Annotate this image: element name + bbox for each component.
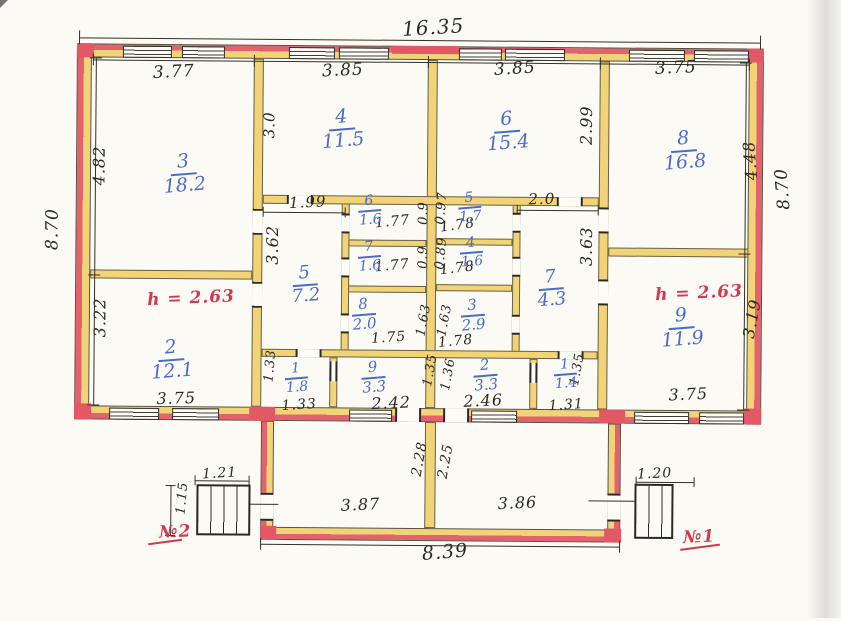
room-area: 3.3	[474, 376, 499, 395]
room-label-5: 51.7	[457, 190, 482, 225]
wall-corner	[392, 46, 459, 55]
dimension-line	[79, 30, 80, 44]
dimension-label: 4.48	[739, 140, 761, 181]
window-symbol	[109, 408, 159, 420]
dimension-label: 0.9	[416, 245, 431, 269]
dimension-line	[619, 541, 620, 553]
dimension-label: 2.42	[371, 392, 411, 413]
dimension-line	[588, 500, 635, 501]
room-label-9: 93.3	[360, 359, 387, 396]
wall	[348, 285, 426, 293]
room-area: 18.2	[163, 173, 207, 197]
room-area: 3.3	[362, 378, 387, 397]
dimension-line	[195, 475, 196, 485]
room-number: 6	[357, 193, 381, 212]
dimension-label: 0.9	[416, 201, 431, 225]
room-area: 1.8	[285, 378, 309, 395]
dimension-label: 1.99	[289, 192, 327, 212]
dimension-label: 1.33	[261, 349, 279, 383]
window-symbol	[634, 412, 689, 424]
wall	[746, 49, 764, 425]
room-label-6: 615.4	[484, 108, 530, 155]
walls-layer	[2, 0, 841, 3]
room-area: 12.1	[151, 359, 195, 383]
room-label-8: 82.0	[351, 296, 378, 333]
dimension-label: 3.77	[152, 61, 195, 83]
dimension-line	[88, 274, 100, 275]
dimension-label: 1.63	[434, 303, 455, 338]
dimension-label: 1.31	[548, 396, 584, 414]
room-label-3: 32.9	[460, 297, 487, 334]
dimension-line	[248, 504, 278, 505]
room-label-2: 212.1	[149, 337, 195, 384]
wall	[607, 423, 621, 541]
dimension-line	[760, 36, 761, 50]
entrance-number-label: №1	[683, 526, 716, 547]
dimension-line	[87, 404, 99, 405]
window-symbol	[182, 46, 225, 58]
wall	[608, 247, 748, 257]
wall-corner	[74, 403, 91, 419]
room-label-7: 71.6	[357, 239, 382, 274]
wall	[74, 43, 92, 419]
dimension-label: 1.36	[438, 357, 459, 392]
door-opening	[296, 349, 322, 357]
dimension-line	[90, 57, 102, 58]
dimension-label: 3.22	[90, 298, 109, 338]
wall-corner	[599, 409, 625, 423]
dimension-line	[166, 485, 176, 486]
dimension-line	[600, 57, 601, 69]
dimension-line	[598, 205, 599, 215]
dimension-label: 2.99	[577, 105, 596, 145]
room-number: 1	[284, 360, 308, 379]
door-opening	[260, 493, 273, 521]
door-opening	[598, 279, 608, 305]
door-opening	[529, 363, 537, 383]
wall	[597, 61, 610, 409]
dimension-line	[694, 477, 695, 487]
door-opening	[341, 313, 349, 333]
dimension-label: 3.75	[156, 388, 196, 408]
dimension-line	[263, 212, 345, 214]
room-label-3: 318.2	[161, 151, 207, 198]
room-label-8: 816.8	[661, 128, 707, 175]
window-symbol	[123, 46, 172, 58]
room-area: 2.0	[352, 315, 377, 334]
window-symbol	[172, 408, 219, 420]
dimension-label: 1.33	[281, 396, 317, 414]
wall	[436, 284, 512, 292]
room-label-1: 11.8	[284, 360, 309, 395]
dimension-line	[740, 63, 752, 64]
dimension-label: 3.85	[321, 59, 364, 81]
dimension-line	[749, 59, 750, 71]
room-number: 7	[357, 239, 381, 258]
dimension-line	[254, 55, 255, 67]
dimension-label: 3.75	[654, 57, 697, 79]
openings-layer	[2, 0, 841, 3]
dimension-line	[517, 205, 518, 215]
room-area: 4.3	[537, 289, 567, 311]
door-opening	[513, 213, 521, 233]
dimension-label: 1.78	[437, 332, 474, 351]
room-label-9: 911.9	[659, 305, 705, 352]
dimension-label: 3.63	[577, 226, 596, 266]
ceiling-height-label: h = 2.63	[655, 281, 744, 305]
dimension-lines-layer	[2, 0, 841, 3]
room-area: 1.7	[458, 207, 482, 224]
window-symbol	[471, 410, 517, 422]
floor-plan-drawing: 16.353.773.853.853.758.704.823.228.704.4…	[0, 0, 841, 621]
wall-corner	[249, 407, 275, 421]
dimension-label: 2.25	[435, 442, 457, 479]
door-opening	[512, 257, 520, 277]
window-symbol	[699, 412, 744, 424]
dimension-label: 2.0	[528, 190, 555, 209]
room-area: 7.2	[291, 285, 321, 307]
room-area: 11.5	[321, 129, 365, 153]
dimension-label: 8.70	[42, 208, 62, 250]
room-label-4: 41.6	[459, 235, 484, 270]
door-opening	[512, 315, 520, 335]
dimension-label: 3.75	[668, 384, 708, 405]
room-area: 1.6	[358, 257, 382, 274]
room-area: 15.4	[486, 131, 530, 155]
dimension-label: 4.82	[89, 146, 108, 186]
window-symbol	[289, 47, 335, 59]
dimension-label: 3.86	[497, 492, 537, 513]
room-area: 2.9	[461, 315, 486, 334]
dimension-line	[517, 210, 599, 212]
wall	[90, 269, 252, 279]
labels-layer: 16.353.773.853.853.758.704.823.228.704.4…	[2, 0, 841, 3]
door-opening	[557, 197, 583, 206]
room-area: 1.6	[358, 211, 382, 228]
window-symbol	[459, 48, 502, 60]
dimension-label: 8.39	[421, 539, 469, 565]
room-area: 16.8	[663, 150, 707, 174]
scan-corner-mark	[0, 0, 8, 8]
door-opening	[253, 209, 263, 235]
door-opening	[252, 282, 262, 308]
door-opening	[329, 361, 337, 381]
dimension-label: 1.15	[173, 481, 191, 515]
entrance-steps-left	[196, 484, 250, 535]
wall	[260, 527, 620, 543]
dimension-label: 3.87	[340, 494, 380, 515]
door-opening	[599, 207, 609, 233]
room-number: 5	[457, 190, 481, 209]
room-label-1: 11.4	[553, 357, 578, 392]
dimension-label: 3.0	[260, 111, 278, 138]
dimension-line	[737, 409, 749, 410]
room-area: 1.4	[554, 374, 578, 391]
dimension-line	[93, 58, 97, 405]
scanned-floor-plan-page: { "plan_title": "floor plan", "overall_d…	[0, 0, 841, 618]
wall	[260, 421, 274, 539]
wall-corner	[260, 526, 276, 540]
dimension-line	[263, 207, 264, 217]
dimension-line	[428, 56, 429, 68]
wall-corner	[744, 409, 761, 425]
wall-corner	[77, 43, 94, 57]
room-number: 1	[553, 357, 577, 376]
entrance-number-label: №2	[159, 521, 192, 542]
dimension-line	[260, 538, 261, 550]
room-number: 4	[459, 235, 483, 254]
door-opening	[607, 493, 620, 521]
ceiling-height-label: h = 2.63	[147, 286, 236, 310]
dimension-line	[93, 53, 94, 65]
dimension-line	[738, 253, 750, 254]
dimension-label: 1.20	[637, 465, 673, 483]
room-label-6: 61.6	[357, 193, 382, 228]
room-area: 1.6	[460, 252, 484, 269]
dimension-label: 3.85	[493, 57, 536, 80]
window-symbol	[339, 47, 389, 59]
dimension-line	[345, 207, 346, 217]
door-opening	[341, 257, 349, 277]
dimension-label: 3.62	[263, 225, 282, 265]
room-area: 11.9	[661, 327, 705, 351]
window-symbol	[694, 50, 749, 62]
dimension-label: 1.21	[202, 464, 238, 482]
dimension-label: 16.35	[401, 13, 465, 41]
room-label-4: 411.5	[320, 106, 366, 153]
entrance-steps-right	[634, 484, 673, 539]
room-label-5: 57.2	[289, 263, 321, 307]
dimension-label: 8.70	[771, 167, 794, 210]
room-label-2: 23.3	[472, 357, 499, 394]
room-label-7: 74.3	[535, 267, 567, 311]
